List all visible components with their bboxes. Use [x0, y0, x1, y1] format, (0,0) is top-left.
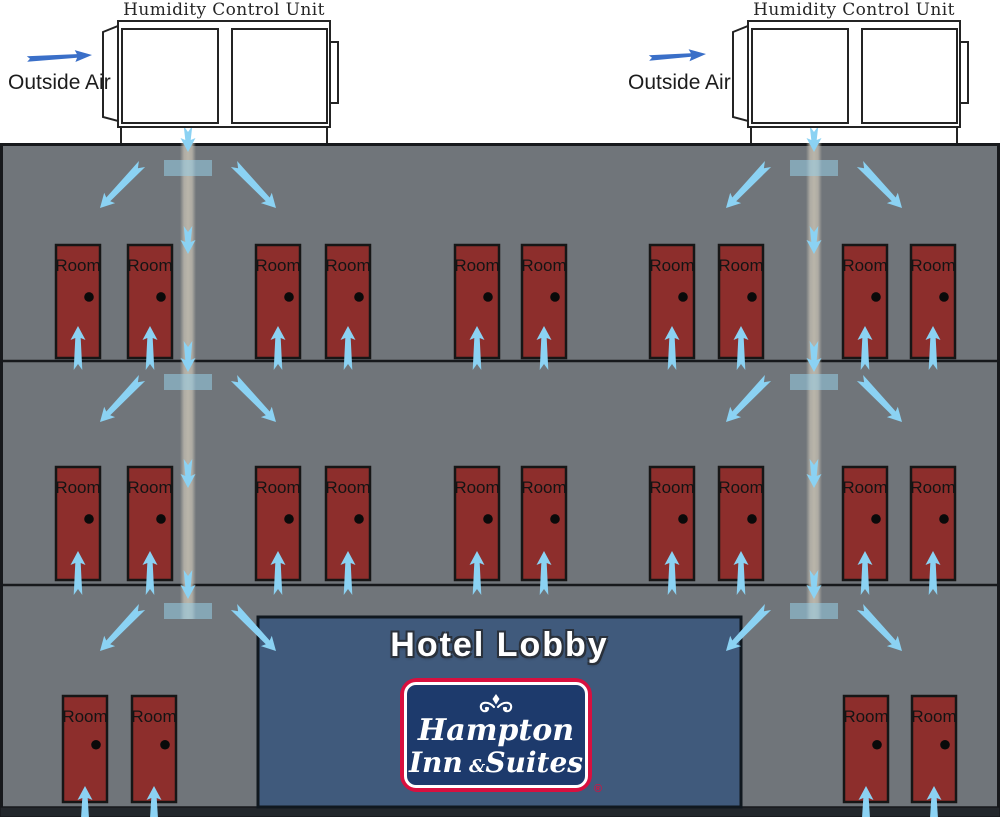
- room-label: Room: [718, 256, 763, 275]
- duct-diffuser: [790, 374, 838, 390]
- humidity-control-unit: [103, 21, 338, 143]
- unit-panel: [122, 29, 218, 123]
- door-knob: [747, 292, 757, 302]
- door-knob: [871, 514, 881, 524]
- room-label: Room: [127, 256, 172, 275]
- door-knob: [284, 514, 294, 524]
- door-knob: [678, 514, 688, 524]
- duct-diffuser: [790, 603, 838, 619]
- outside-air-label-right: Outside Air: [628, 71, 731, 95]
- hampton-logo-panel: Hampton Inn &Suites: [404, 682, 588, 788]
- unit-panel: [752, 29, 848, 123]
- room-label: Room: [910, 256, 955, 275]
- room-label: Room: [454, 478, 499, 497]
- unit-title-right: Humidity Control Unit: [704, 0, 1000, 20]
- logo-hampton-text: Hampton: [418, 716, 574, 746]
- room-label: Room: [325, 478, 370, 497]
- duct-diffuser: [164, 160, 212, 176]
- room-label: Room: [521, 478, 566, 497]
- room-label: Room: [649, 478, 694, 497]
- hotel-lobby-title: Hotel Lobby: [258, 626, 741, 665]
- room-label: Room: [454, 256, 499, 275]
- door-knob: [939, 514, 949, 524]
- unit-outlet-tab: [330, 42, 338, 103]
- door-knob: [84, 292, 94, 302]
- unit-panel: [862, 29, 957, 123]
- room-label: Room: [649, 256, 694, 275]
- door-knob: [91, 740, 101, 750]
- room-label: Room: [910, 478, 955, 497]
- room-label: Room: [842, 256, 887, 275]
- door-knob: [483, 514, 493, 524]
- logo-ornament-icon: [474, 693, 518, 715]
- room-label: Room: [911, 707, 956, 726]
- room-label: Room: [325, 256, 370, 275]
- room-label: Room: [131, 707, 176, 726]
- unit-outlet-tab: [960, 42, 968, 103]
- door-knob: [550, 292, 560, 302]
- unit-panel: [232, 29, 327, 123]
- unit-title-left: Humidity Control Unit: [74, 0, 374, 20]
- outside-air-label-left: Outside Air: [8, 71, 111, 95]
- duct-diffuser: [164, 374, 212, 390]
- door-knob: [84, 514, 94, 524]
- humidity-control-unit: [733, 21, 968, 143]
- room-label: Room: [842, 478, 887, 497]
- duct-diffuser: [790, 160, 838, 176]
- room-label: Room: [255, 478, 300, 497]
- unit-intake-flap: [733, 26, 748, 121]
- duct-diffuser: [164, 603, 212, 619]
- room-label: Room: [521, 256, 566, 275]
- room-label: Room: [62, 707, 107, 726]
- door-knob: [156, 514, 166, 524]
- outside-air-arrow: [649, 49, 706, 61]
- hampton-logo: Hampton Inn &Suites ®: [400, 678, 592, 792]
- door-knob: [354, 514, 364, 524]
- room-label: Room: [55, 478, 100, 497]
- registered-mark: ®: [594, 783, 602, 795]
- door-knob: [872, 740, 882, 750]
- room-label: Room: [718, 478, 763, 497]
- door-knob: [483, 292, 493, 302]
- door-knob: [160, 740, 170, 750]
- door-knob: [156, 292, 166, 302]
- room-label: Room: [255, 256, 300, 275]
- outside-air-arrow: [27, 50, 92, 62]
- door-knob: [284, 292, 294, 302]
- logo-inn-suites-text: Inn &Suites: [409, 749, 583, 777]
- door-knob: [354, 292, 364, 302]
- room-label: Room: [127, 478, 172, 497]
- room-label: Room: [55, 256, 100, 275]
- door-knob: [678, 292, 688, 302]
- door-knob: [747, 514, 757, 524]
- door-knob: [871, 292, 881, 302]
- door-knob: [940, 740, 950, 750]
- door-knob: [550, 514, 560, 524]
- door-knob: [939, 292, 949, 302]
- room-label: Room: [843, 707, 888, 726]
